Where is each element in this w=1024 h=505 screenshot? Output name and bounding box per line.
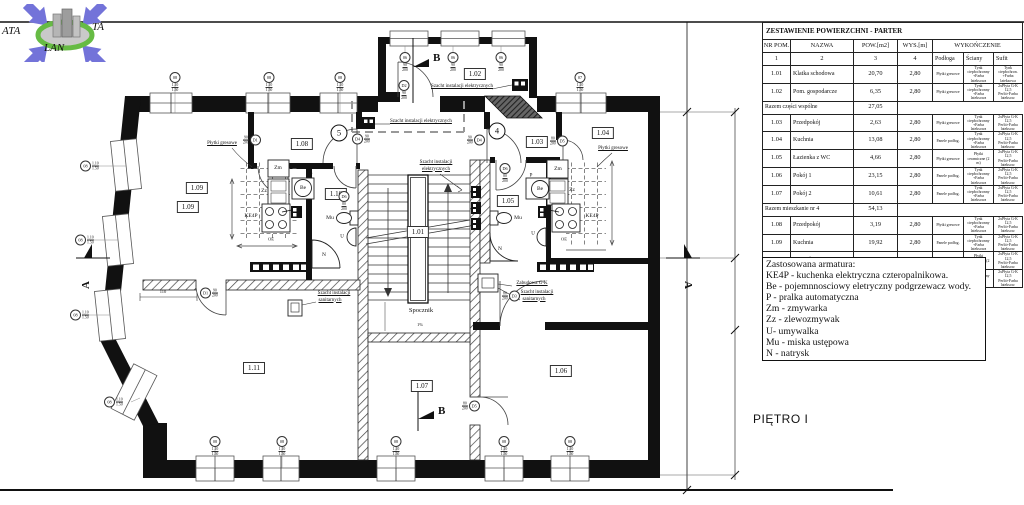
- window-marker-06: 0690200: [496, 52, 507, 72]
- label-slope: 1%: [417, 322, 423, 328]
- cell-summary-label: Razem mieszkanie nr 4: [763, 203, 854, 216]
- company-logo: ATA TA LAN: [0, 4, 125, 62]
- cell-sufit: 2xPłyta G-K 12,5 Perlit+Farba lateksow.: [994, 132, 1023, 150]
- door-marker-d6-right: D680200: [500, 163, 511, 183]
- table-row: 1.09Kuchnia19,922,80Panele podłog.Tynk c…: [763, 234, 1023, 252]
- cell-wys: 2,80: [898, 234, 933, 252]
- cell-pow: 13,08: [854, 132, 898, 150]
- section-letter-a-left: A: [80, 281, 92, 289]
- note-szacht-elektryczny-1: Szacht instalacji elektrycznych: [431, 84, 493, 90]
- door-marker-d5-right: 80200D5: [550, 136, 568, 147]
- cell-sciany: Tynk ciepłochronny +Farba lateksowa: [964, 234, 994, 252]
- legend-item: Be - pojemnnosciowy eletryczny podgrzewa…: [766, 281, 985, 292]
- cell-nazwa: Pokój 2: [791, 185, 854, 203]
- cell-nr: 1.04: [763, 132, 791, 150]
- table-summary-row: Razem części wspólne27,05: [763, 101, 1023, 114]
- col-num: 1: [763, 53, 791, 66]
- cell-podloga: Płytki gresowe: [933, 114, 964, 132]
- cell-empty: [898, 101, 1023, 114]
- cell-nr: 1.01: [763, 66, 791, 84]
- window-marker-08: 081.101.50: [264, 72, 275, 92]
- fixture-be-left: Be: [300, 185, 306, 191]
- logo-buildings-icon: [53, 9, 80, 37]
- apartment-marker-4: 4: [489, 123, 506, 140]
- cell-wys: 2,80: [898, 114, 933, 132]
- cell-nr: 1.08: [763, 216, 791, 234]
- room-label-1.11: 1.11: [243, 362, 265, 374]
- fixture-zz-right: Zz: [569, 187, 575, 193]
- cell-nazwa: Klatka schodowa: [791, 66, 854, 84]
- table-row: 1.03Przedpokój2,632,80Płytki gresoweTynk…: [763, 114, 1023, 132]
- cell-nr: 1.05: [763, 150, 791, 168]
- cell-sciany: Płytki ceramiczne (2 m): [964, 150, 994, 168]
- table-row: 1.07Pokój 210,612,80Panele podłog.Tynk c…: [763, 185, 1023, 203]
- cell-nazwa: Kuchnia: [791, 132, 854, 150]
- section-letter-a-right: A: [682, 281, 694, 289]
- col-header-wykonczenie: WYKOŃCZENIE: [933, 40, 1023, 53]
- col-num: 4: [898, 53, 933, 66]
- floor-title: PIĘTRO I: [753, 412, 808, 426]
- cell-sciany: Tynk ciepłochronny +Farba lateksowa: [964, 66, 994, 84]
- fixtures-legend: Zastosowana armatura: KE4P - kuchenka el…: [762, 257, 986, 361]
- fixture-u-left: U: [340, 235, 344, 240]
- cell-pow: 19,92: [854, 234, 898, 252]
- window-marker-08: 081.101.50: [335, 72, 346, 92]
- cell-summary-value: 54,13: [854, 203, 898, 216]
- note-szacht-sanitarny-1a: Szacht instalacji: [318, 291, 351, 297]
- table-row: 1.01Klatka schodowa20,702,80Płytki greso…: [763, 66, 1023, 84]
- cell-sciany: Tynk ciepłochronny +Farba lateksowa: [964, 185, 994, 203]
- cell-nr: 1.09: [763, 234, 791, 252]
- cell-sciany: Tynk ciepłochronny +Farba lateksowa: [964, 216, 994, 234]
- room-label-1.02: 1.02: [464, 68, 486, 80]
- cell-nazwa: Przedpokój: [791, 114, 854, 132]
- legend-item: KE4P - kuchenka elektryczna czteropalnik…: [766, 270, 985, 281]
- cell-nr: 1.07: [763, 185, 791, 203]
- cell-nr: 1.02: [763, 83, 791, 101]
- note-szacht-elektryczny-2: Szacht instalacji elektrycznych: [390, 119, 452, 125]
- room-label-1.08: 1.08: [291, 138, 313, 150]
- label-spocznik: Spocznik: [409, 308, 433, 314]
- apartment-marker-5: 5: [331, 125, 348, 142]
- cell-pow: 23,15: [854, 168, 898, 186]
- note-szacht-sanitarny-2b: sanitarnych: [522, 297, 545, 303]
- cell-nr: 1.06: [763, 168, 791, 186]
- cell-nazwa: Pom. gospodarcze: [791, 83, 854, 101]
- room-label-1.01: 1.01: [407, 226, 429, 238]
- door-marker-d6-left: D680200: [339, 191, 350, 211]
- door-marker-d3: 80200D3: [502, 291, 520, 302]
- cell-sciany: Tynk ciepłochronny +Farba lateksowa: [964, 114, 994, 132]
- col-num: 2: [791, 53, 854, 66]
- cell-sufit: 2xPłyta G-K 12,5 Perlit+Farba lateksow.: [994, 150, 1023, 168]
- room-label-1.04: 1.04: [592, 127, 614, 139]
- door-marker-d4-right: 90200D4: [467, 135, 485, 146]
- note-szacht-sanitarny-1b: sanitarnych: [318, 298, 341, 304]
- fixture-zm-right: Zm: [554, 166, 562, 172]
- fixture-p-right: P: [530, 174, 533, 179]
- fixture-oe-right: OE: [561, 237, 567, 242]
- floorplan-sheet: ATA TA LAN 1.01 1.02 1.03 1.04 1.05 1.06…: [0, 0, 1024, 505]
- cell-nr: 1.03: [763, 114, 791, 132]
- cell-nazwa: Łazienka z WC: [791, 150, 854, 168]
- window-marker-08: 081.101.50: [391, 436, 402, 456]
- cell-podloga: Płytki gresowe: [933, 216, 964, 234]
- room-label-1.06: 1.06: [550, 365, 572, 377]
- table-row: 1.08Przedpokój3,192,80Płytki gresoweTynk…: [763, 216, 1023, 234]
- room-label-1.07: 1.07: [411, 380, 433, 392]
- dim-door-110: 110: [160, 289, 167, 295]
- cell-sufit: 2xPłyta G-K 12,5 Perlit+Farba lateksow.: [994, 168, 1023, 186]
- fixture-u-right: U: [531, 232, 535, 237]
- legend-item: Zm - zmywarka: [766, 303, 985, 314]
- room-label-1.09-b: 1.09: [177, 201, 199, 213]
- legend-item: Mu - miska ustępowa: [766, 337, 985, 348]
- fixture-oe-left: OE: [268, 237, 274, 242]
- window-marker-08: 081.101.50: [170, 72, 181, 92]
- col-header-podloga: Podłoga: [933, 53, 964, 66]
- logo-text-right: TA: [92, 21, 104, 33]
- col-header-sufit: Sufit: [994, 53, 1023, 66]
- fixture-n-left: N: [322, 252, 326, 258]
- cell-summary-value: 27,05: [854, 101, 898, 114]
- logo-text-left: ATA: [2, 25, 20, 37]
- door-marker-d1-bottom: D190200: [200, 288, 218, 299]
- note-zabudowa-gk: Zabudowa G-K: [516, 281, 547, 287]
- cell-sciany: Tynk ciepłochronny +Farba lateksowa: [964, 132, 994, 150]
- cell-pow: 4,66: [854, 150, 898, 168]
- note-plytki-gresowe-right: Płytki gresowe: [598, 146, 628, 152]
- table-row: 1.02Pom. gospodarcze6,352,80Płytki greso…: [763, 83, 1023, 101]
- window-marker-08: 081.101.50: [80, 161, 99, 172]
- cell-nazwa: Kuchnia: [791, 234, 854, 252]
- cell-sufit: 2xPłyta G-K 12,5 Perlit+Farba lateksow.: [994, 83, 1023, 101]
- col-header-sciany: Ściany: [964, 53, 994, 66]
- door-marker-d4-left: D490200: [352, 134, 370, 145]
- table-header-row: NR POM. NAZWA POW.[m2] WYS.[m] WYKOŃCZEN…: [763, 40, 1023, 53]
- table-row: 1.04Kuchnia13,082,80Panele podłog.Tynk c…: [763, 132, 1023, 150]
- door-marker-d1: 90200D1: [243, 135, 261, 146]
- cell-podloga: Panele podłog.: [933, 168, 964, 186]
- legend-item: N - natrysk: [766, 348, 985, 359]
- table-title: ZESTAWIENIE POWIERZCHNI - PARTER: [763, 23, 1023, 40]
- cell-sufit: 2xPłyta G-K 12,5 Perlit+Farba lateksow.: [994, 270, 1023, 288]
- room-label-1.05: 1.05: [497, 195, 519, 207]
- note-szacht-elektryczny-3a: Szacht instalacji: [420, 160, 453, 166]
- table-row: 1.06Pokój 123,152,80Panele podłog.Tynk c…: [763, 168, 1023, 186]
- fixture-be-right: Be: [537, 186, 543, 192]
- window-marker-08: 081.101.50: [499, 436, 510, 456]
- window-dim: 1.101.50: [172, 83, 179, 92]
- cell-sufit: 2xPłyta G-K 12,5 Perlit+Farba lateksow.: [994, 234, 1023, 252]
- cell-empty: [898, 203, 1023, 216]
- section-letter-b-top: B: [433, 52, 440, 64]
- legend-title: Zastosowana armatura:: [766, 259, 985, 270]
- window-marker-08: 081.101.50: [75, 235, 94, 246]
- table-row: 1.05Łazienka z WC4,662,80Płytki gresoweP…: [763, 150, 1023, 168]
- legend-item: Zz - zlewozmywak: [766, 314, 985, 325]
- cell-sufit: 2xPłyta G-K 12,5 Perlit+Farba lateksow.: [994, 185, 1023, 203]
- cell-pow: 2,63: [854, 114, 898, 132]
- window-marker-07: 071.101.50: [575, 72, 586, 92]
- legend-item: P - pralka automatyczna: [766, 292, 985, 303]
- cell-wys: 2,80: [898, 132, 933, 150]
- section-letter-b-bottom: B: [438, 405, 445, 417]
- fixture-n-right: N: [498, 246, 502, 252]
- cell-podloga: Płytki gresowe: [933, 83, 964, 101]
- room-label-1.09-a: 1.09: [186, 182, 208, 194]
- cell-podloga: Płytki gresowe: [933, 150, 964, 168]
- cell-sufit: 2xPłyta G-K 12,5 Perlit+Farba lateksow.: [994, 252, 1023, 270]
- cell-summary-label: Razem części wspólne: [763, 101, 854, 114]
- legend-item: U- umywalka: [766, 326, 985, 337]
- cell-wys: 2,80: [898, 185, 933, 203]
- cell-podloga: Panele podłog.: [933, 185, 964, 203]
- window-marker-circle: 08: [170, 72, 181, 83]
- note-szacht-sanitarny-2a: Szacht instalacji: [521, 290, 554, 296]
- cell-sciany: Tynk ciepłochronny +Farba lateksowa: [964, 168, 994, 186]
- cell-wys: 2,80: [898, 66, 933, 84]
- col-header-pow: POW.[m2]: [854, 40, 898, 53]
- door-marker-d5-bottom: 80200D5: [462, 401, 480, 412]
- note-szacht-elektryczny-3b: elektrycznych: [422, 167, 450, 173]
- col-header-nr: NR POM.: [763, 40, 791, 53]
- col-header-wys: WYS.[m]: [898, 40, 933, 53]
- col-num: 3: [854, 53, 898, 66]
- cell-sufit: 2xPłyta G-K 12,5 Perlit+Farba lateksow.: [994, 216, 1023, 234]
- window-marker-08: 081.101.50: [70, 310, 89, 321]
- fixture-p-left: P: [310, 173, 313, 178]
- room-label-1.03: 1.03: [526, 136, 548, 148]
- cell-wys: 2,80: [898, 168, 933, 186]
- cell-pow: 3,19: [854, 216, 898, 234]
- table-subheader-row: 1 2 3 4 Podłoga Ściany Sufit: [763, 53, 1023, 66]
- note-plytki-gresowe-left: Płytki gresowe: [207, 141, 237, 147]
- cell-podloga: Panele podłog.: [933, 132, 964, 150]
- fixture-zm-left: Zm: [274, 165, 282, 171]
- cell-podloga: Panele podłog.: [933, 234, 964, 252]
- cell-nazwa: Pokój 1: [791, 168, 854, 186]
- window-marker-08: 081.101.50: [104, 397, 123, 408]
- fixture-ke4p-left: KE4P: [244, 213, 257, 219]
- cell-sufit: Tynk ciepłochron. +Farba lateksowa: [994, 66, 1023, 84]
- col-header-nazwa: NAZWA: [791, 40, 854, 53]
- fixture-mu-left: Mu: [326, 215, 334, 221]
- cell-wys: 2,80: [898, 150, 933, 168]
- cell-wys: 2,80: [898, 216, 933, 234]
- cell-sufit: 2xPłyta G-K 12,5 Perlit+Farba lateksow.: [994, 114, 1023, 132]
- fixture-ke4p-right: KE4P: [585, 213, 598, 219]
- window-marker-06: 0690200: [400, 52, 411, 72]
- logo-text-bottom: LAN: [44, 42, 64, 54]
- fixture-zz-left: Zz: [261, 188, 267, 194]
- window-marker-08: 081.101.50: [277, 436, 288, 456]
- table-summary-row: Razem mieszkanie nr 454,13: [763, 203, 1023, 216]
- cell-wys: 2,80: [898, 83, 933, 101]
- cell-nazwa: Przedpokój: [791, 216, 854, 234]
- table-title-row: ZESTAWIENIE POWIERZCHNI - PARTER: [763, 23, 1023, 40]
- window-marker-06: 0690200: [448, 52, 459, 72]
- window-marker-08: 081.101.50: [210, 436, 221, 456]
- cell-sciany: Tynk ciepłochronny +Farba lateksowa: [964, 83, 994, 101]
- door-marker-d2: D290200: [399, 80, 410, 100]
- window-marker-08: 081.101.50: [565, 436, 576, 456]
- cell-pow: 6,35: [854, 83, 898, 101]
- cell-pow: 20,70: [854, 66, 898, 84]
- fixture-mu-right: Mu: [514, 215, 522, 221]
- cell-podloga: Płytki gresowe: [933, 66, 964, 84]
- cell-pow: 10,61: [854, 185, 898, 203]
